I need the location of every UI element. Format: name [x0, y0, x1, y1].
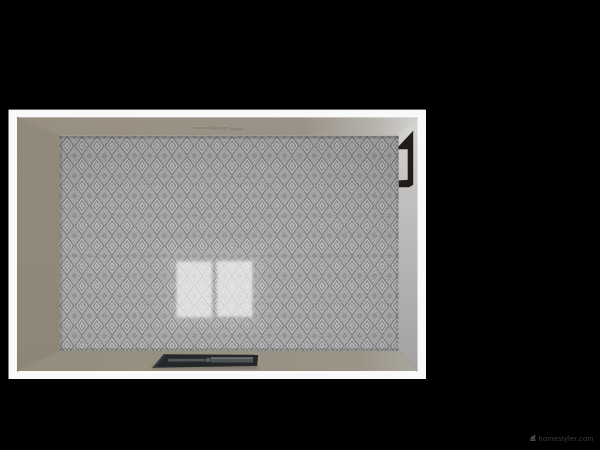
- svg-text:homestyler.com: homestyler.com: [539, 434, 594, 443]
